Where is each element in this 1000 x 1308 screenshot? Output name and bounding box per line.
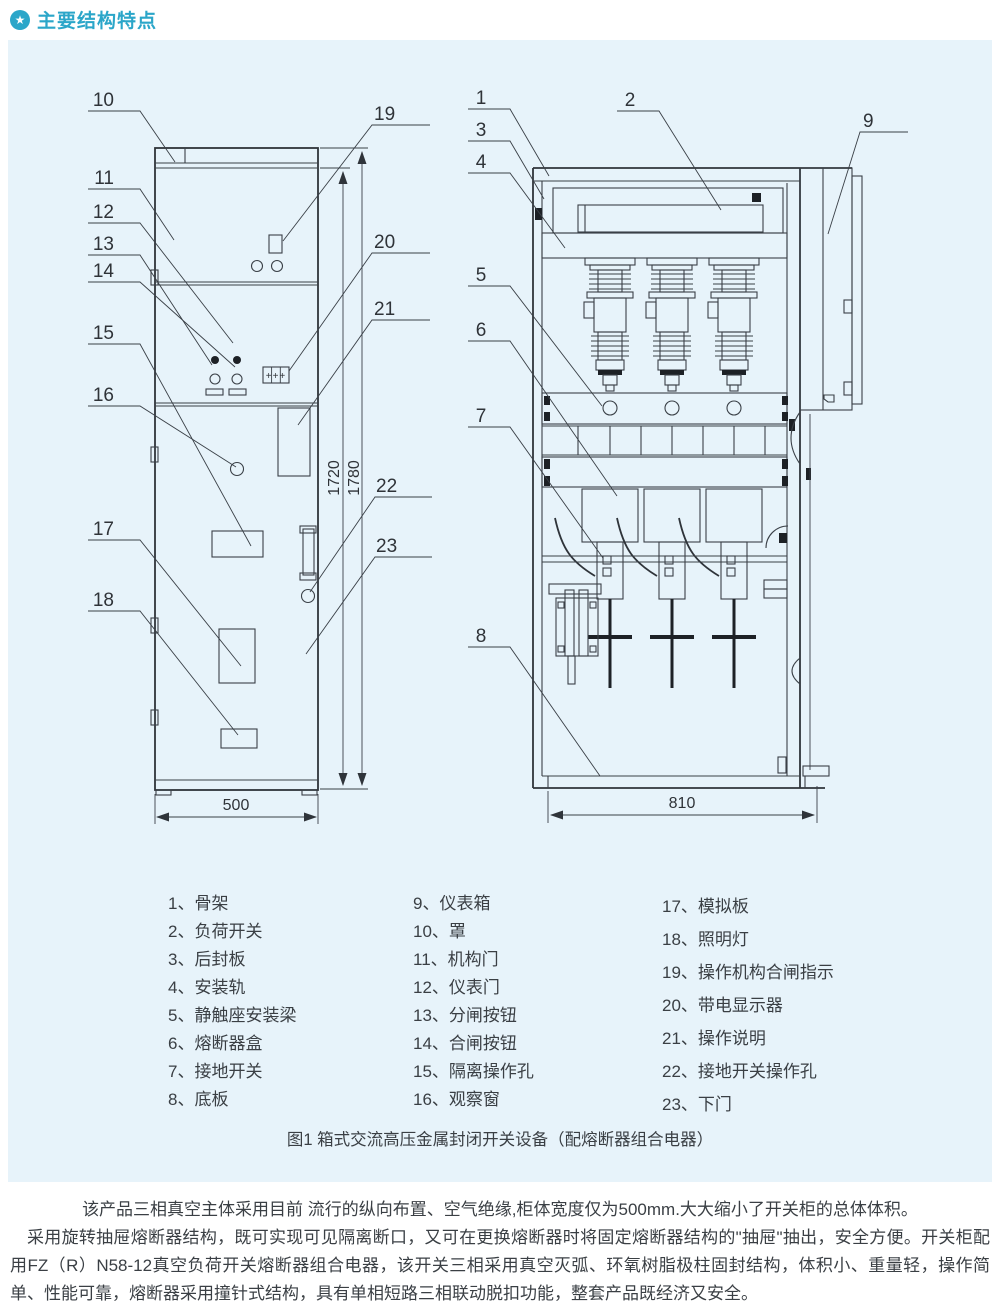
part-item: 6、熔断器盒 (168, 1030, 296, 1058)
part-item: 10、罩 (413, 918, 534, 946)
part-item: 15、隔离操作孔 (413, 1058, 534, 1086)
callout-20: 20 (374, 232, 395, 253)
dimension-height-outer: 1780 (346, 460, 363, 496)
left-drawing-dimensions: 500 1720 1780 (155, 148, 368, 824)
description-paragraph-2: 采用旋转抽屉熔断器结构，既可实现可见隔离断口，又可在更换熔断器时将固定熔断器结构… (10, 1224, 990, 1308)
part-item: 1、骨架 (168, 890, 296, 918)
part-item: 5、静触座安装梁 (168, 1002, 296, 1030)
part-item: 14、合闸按钮 (413, 1030, 534, 1058)
parts-column-3: 17、模拟板 18、照明灯 19、操作机构合闸指示 20、带电显示器 21、操作… (662, 890, 834, 1121)
part-item: 17、模拟板 (662, 890, 834, 923)
callout-7: 7 (476, 406, 487, 427)
right-drawing-cabinet (533, 168, 862, 788)
callout-23: 23 (376, 536, 397, 557)
callout-3: 3 (476, 120, 487, 141)
display-glyph: +++ (266, 371, 287, 382)
callout-11: 11 (94, 168, 114, 189)
callout-6: 6 (476, 320, 487, 341)
dimension-width-left: 500 (223, 797, 250, 814)
callout-8: 8 (476, 626, 487, 647)
dimension-height-inner: 1720 (326, 460, 343, 496)
callout-13: 13 (93, 234, 114, 255)
part-item: 8、底板 (168, 1086, 296, 1114)
callout-2: 2 (625, 90, 636, 111)
callout-4: 4 (476, 152, 487, 173)
part-item: 12、仪表门 (413, 974, 534, 1002)
figure-panel: +++ 500 1720 1780 10 (8, 40, 992, 1182)
part-item: 23、下门 (662, 1088, 834, 1121)
part-item: 9、仪表箱 (413, 890, 534, 918)
part-item: 13、分闸按钮 (413, 1002, 534, 1030)
description-paragraph-1: 该产品三相真空主体采用目前 流行的纵向布置、空气绝缘,柜体宽度仅为500mm.大… (10, 1196, 990, 1224)
part-item: 19、操作机构合闸指示 (662, 956, 834, 989)
callout-10: 10 (93, 90, 114, 111)
part-item: 11、机构门 (413, 946, 534, 974)
part-item: 21、操作说明 (662, 1022, 834, 1055)
live-display-indicator: +++ (263, 367, 289, 383)
left-drawing-callouts: 10 11 12 13 14 15 16 17 18 19 20 21 22 2… (88, 90, 432, 735)
part-item: 2、负荷开关 (168, 918, 296, 946)
left-drawing-cabinet: +++ (151, 148, 318, 795)
callout-21: 21 (374, 299, 395, 320)
part-item: 20、带电显示器 (662, 989, 834, 1022)
callout-14: 14 (93, 261, 115, 282)
part-item: 16、观察窗 (413, 1086, 534, 1114)
part-item: 7、接地开关 (168, 1058, 296, 1086)
callout-12: 12 (93, 202, 114, 223)
parts-column-2: 9、仪表箱 10、罩 11、机构门 12、仪表门 13、分闸按钮 14、合闸按钮… (413, 890, 534, 1114)
parts-column-1: 1、骨架 2、负荷开关 3、后封板 4、安装轨 5、静触座安装梁 6、熔断器盒 … (168, 890, 296, 1114)
part-item: 22、接地开关操作孔 (662, 1055, 834, 1088)
callout-9: 9 (863, 111, 874, 132)
part-item: 3、后封板 (168, 946, 296, 974)
callout-5: 5 (476, 265, 487, 286)
callout-1: 1 (476, 88, 487, 109)
part-item: 4、安装轨 (168, 974, 296, 1002)
star-circle-icon: ★ (10, 10, 30, 30)
right-drawing-callouts: 1 2 3 4 9 5 6 7 8 (468, 88, 908, 776)
part-item: 18、照明灯 (662, 923, 834, 956)
right-drawing-dimensions: 810 (548, 786, 817, 823)
callout-16: 16 (93, 385, 114, 406)
callout-19: 19 (374, 104, 395, 125)
page-title: 主要结构特点 (37, 6, 157, 33)
page-header: ★ 主要结构特点 (10, 6, 157, 33)
description: 该产品三相真空主体采用目前 流行的纵向布置、空气绝缘,柜体宽度仅为500mm.大… (0, 1196, 1000, 1308)
callout-17: 17 (93, 519, 114, 540)
figure-drawing: +++ 500 1720 1780 10 (8, 40, 992, 885)
callout-15: 15 (93, 323, 114, 344)
callout-22: 22 (376, 476, 397, 497)
dimension-width-right: 810 (669, 795, 696, 812)
figure-caption: 图1 箱式交流高压金属封闭开关设备（配熔断器组合电器） (8, 1126, 992, 1150)
callout-18: 18 (93, 590, 114, 611)
